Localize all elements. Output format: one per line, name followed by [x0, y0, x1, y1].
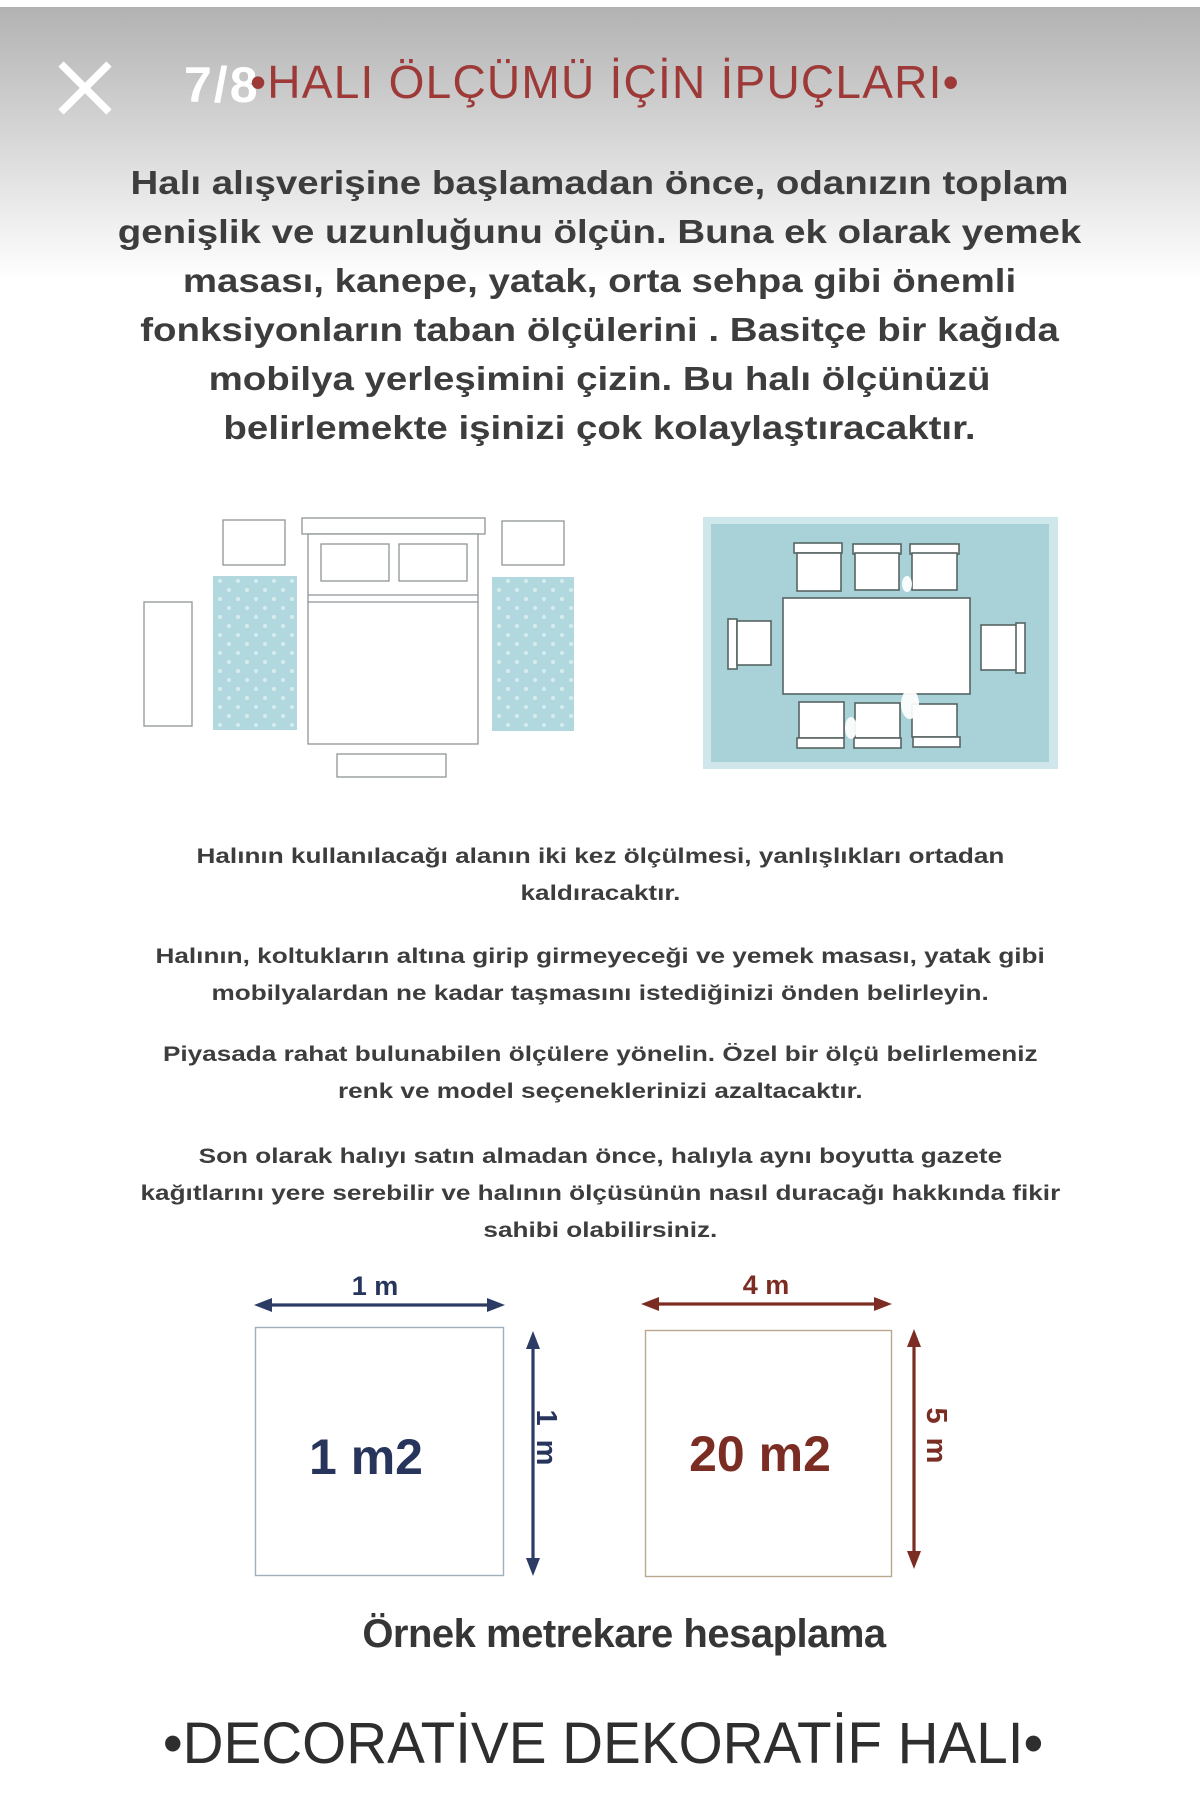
- svg-text:20 m2: 20 m2: [689, 1426, 831, 1482]
- svg-text:4 m: 4 m: [743, 1270, 790, 1300]
- svg-text:1 m: 1 m: [530, 1410, 562, 1469]
- svg-text:1 m: 1 m: [352, 1271, 399, 1301]
- svg-text:5 m: 5 m: [920, 1408, 952, 1467]
- svg-text:1 m2: 1 m2: [309, 1429, 423, 1485]
